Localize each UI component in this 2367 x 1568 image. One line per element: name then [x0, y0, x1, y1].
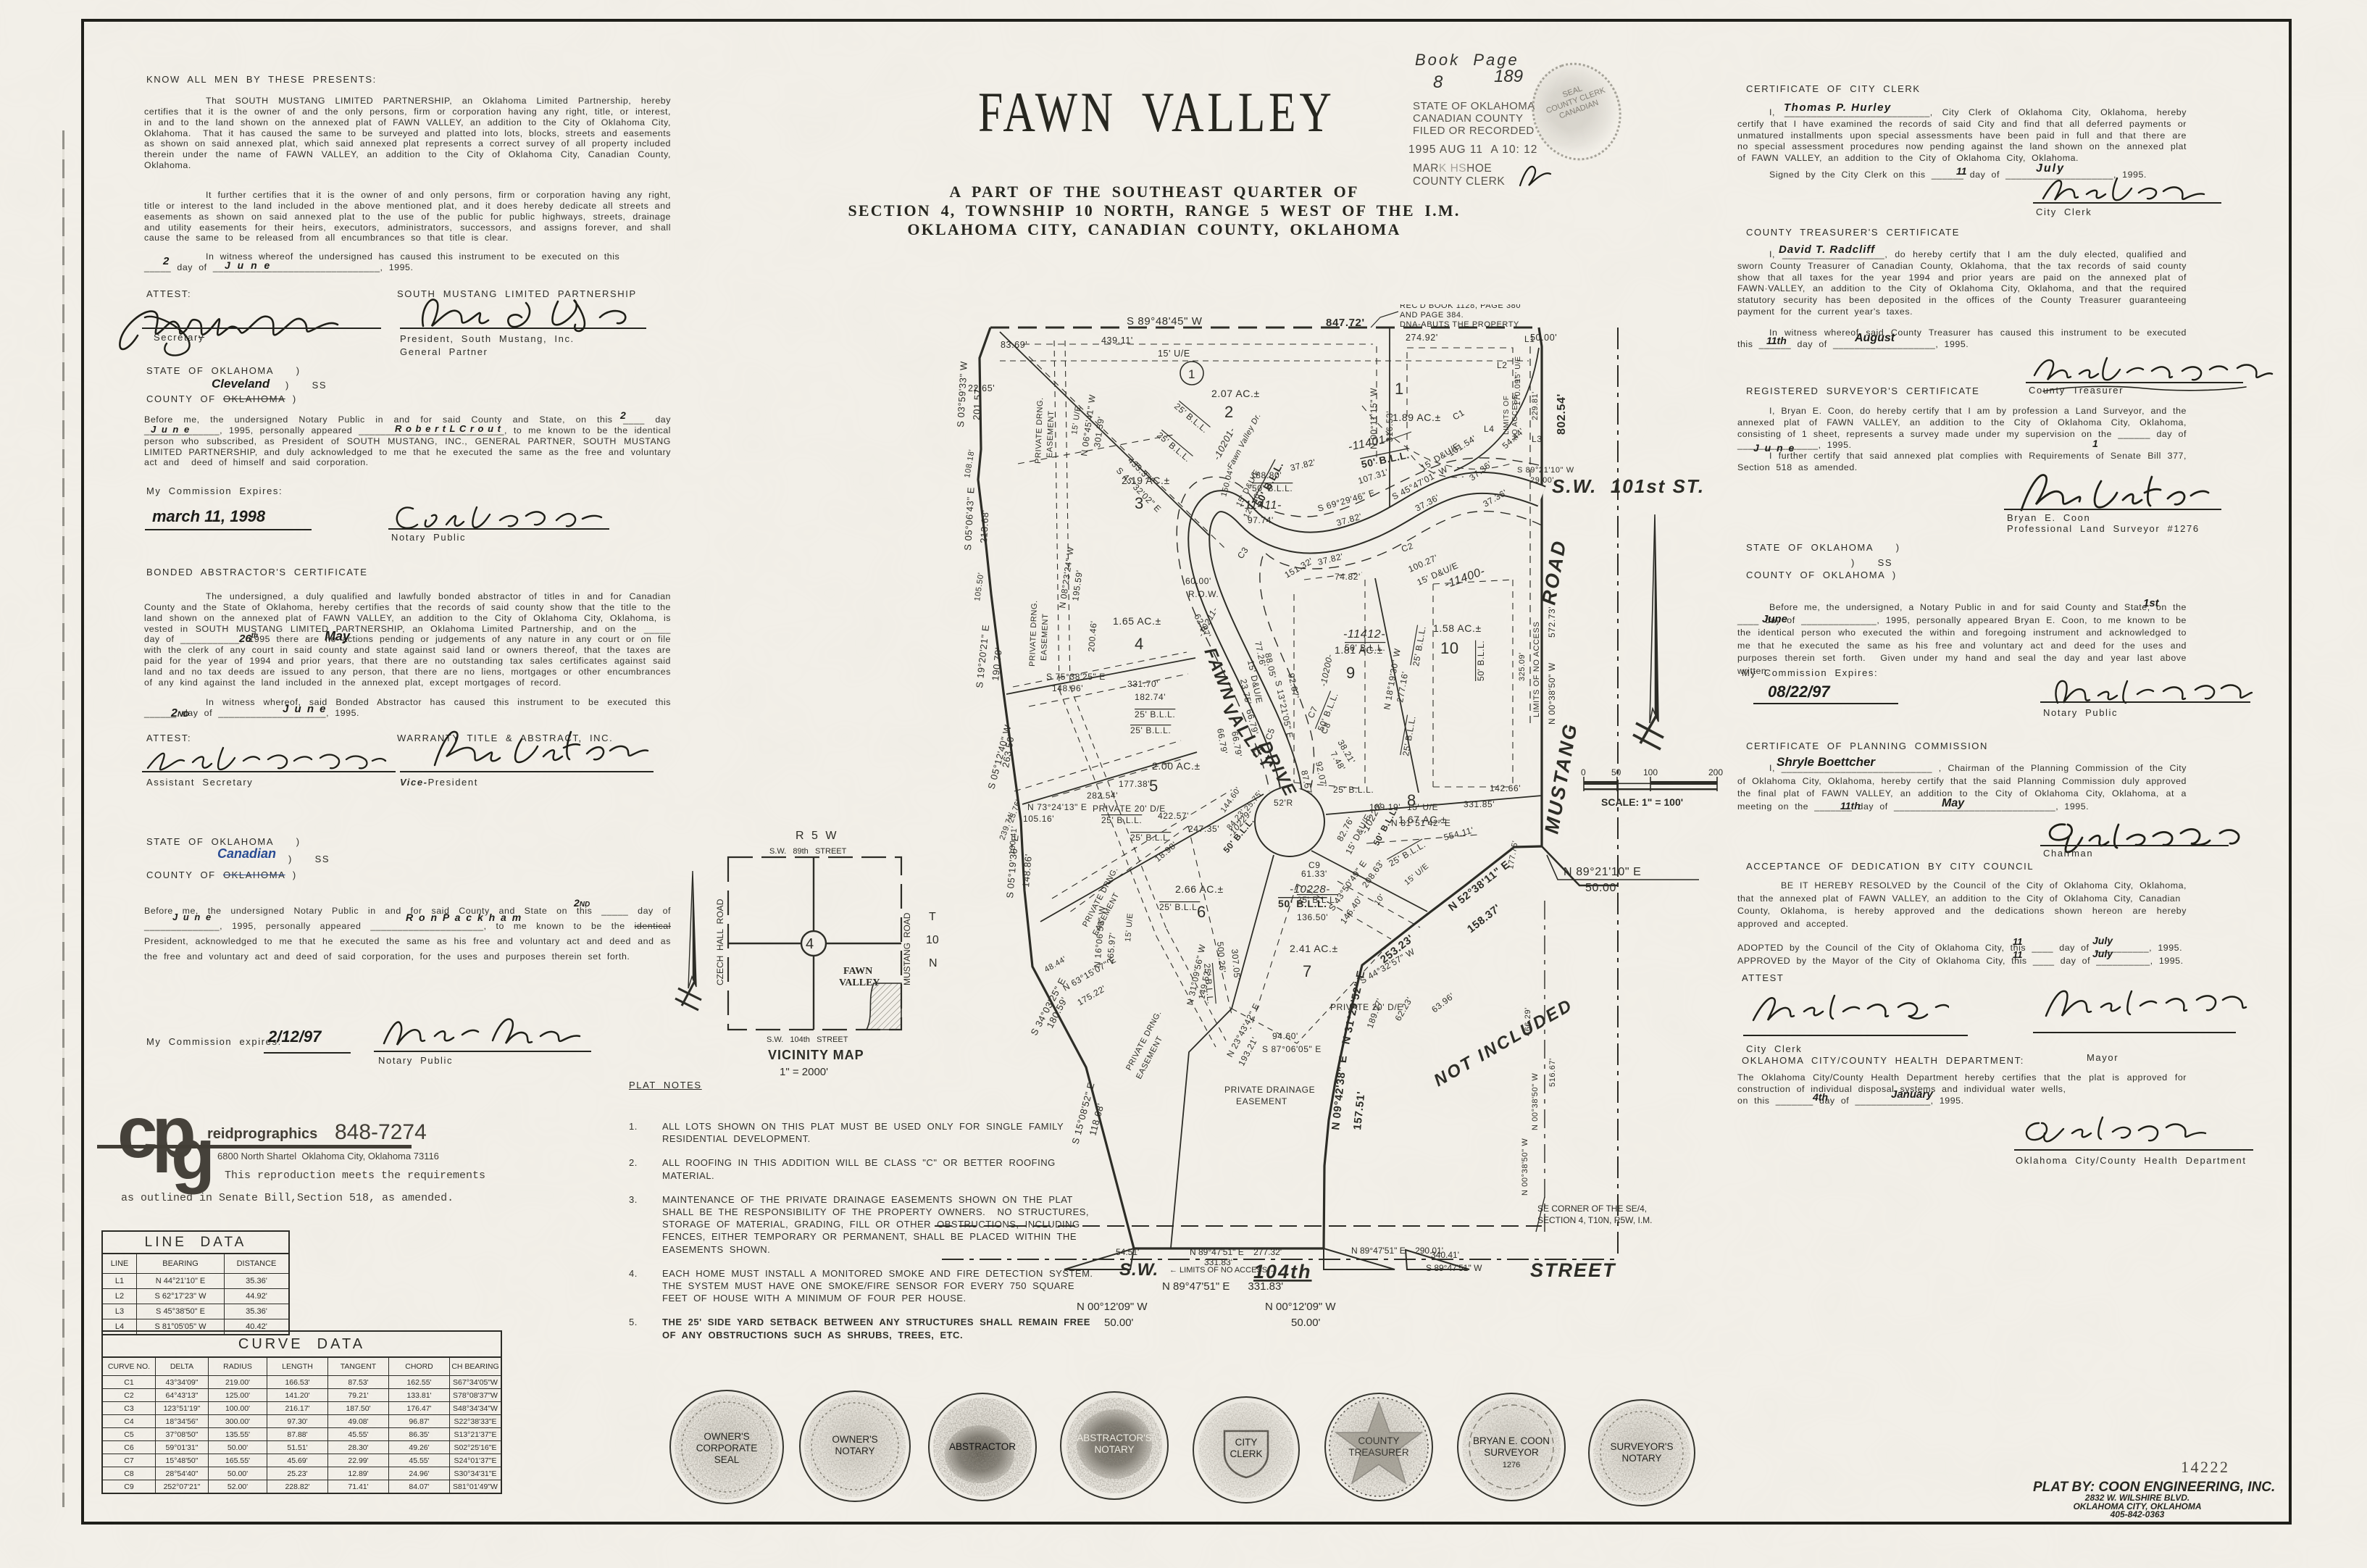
- svg-text:148.96': 148.96': [1052, 683, 1083, 693]
- svg-text:S 89°47'51" W: S 89°47'51" W: [1426, 1263, 1482, 1273]
- svg-text:R.O.W.: R.O.W.: [1188, 589, 1219, 599]
- svg-text:15' U/E: 15' U/E: [1407, 802, 1438, 812]
- svg-text:SEAL: SEAL: [714, 1454, 740, 1465]
- svg-text:7: 7: [1303, 962, 1312, 980]
- svg-text:60.00': 60.00': [1185, 576, 1211, 586]
- svg-text:15' U/E: 15' U/E: [1070, 405, 1082, 435]
- svg-text:SE CORNER OF THE SE/4,: SE CORNER OF THE SE/4,: [1537, 1204, 1647, 1214]
- svg-text:4: 4: [1135, 635, 1144, 653]
- svg-text:247.35': 247.35': [1188, 824, 1219, 834]
- svg-text:PRIVATE DRAINAGE: PRIVATE DRAINAGE: [1224, 1085, 1315, 1095]
- svg-text:229.81': 229.81': [1531, 391, 1540, 420]
- svg-text:S.W. 89th STREET: S.W. 89th STREET: [769, 847, 847, 856]
- svg-text:50.00': 50.00': [1104, 1317, 1134, 1329]
- svg-text:-11412-: -11412-: [1343, 628, 1385, 641]
- svg-text:15' U/E: 15' U/E: [1124, 912, 1135, 942]
- svg-text:18.98': 18.98': [1153, 839, 1180, 864]
- svg-text:C1: C1: [1451, 407, 1466, 422]
- svg-text:EASEMENT: EASEMENT: [1040, 613, 1050, 661]
- svg-text:50' B.L.L.: 50' B.L.L.: [1345, 643, 1385, 653]
- svg-text:52'R: 52'R: [1274, 798, 1293, 808]
- svg-text:S 69°29'46" E: S 69°29'46" E: [1316, 488, 1377, 514]
- svg-text:50' B.L.L.: 50' B.L.L.: [1278, 898, 1327, 909]
- svg-text:25' B.L.L.: 25' B.L.L.: [1130, 725, 1171, 735]
- svg-text:1276: 1276: [1503, 1461, 1520, 1469]
- svg-text:74.82': 74.82': [1335, 572, 1361, 582]
- svg-text:331.85': 331.85': [1464, 799, 1495, 809]
- svg-text:301.59': 301.59': [1092, 416, 1106, 449]
- svg-text:274.92': 274.92': [1406, 333, 1438, 343]
- svg-text:50: 50: [1611, 767, 1621, 777]
- svg-text:802.54': 802.54': [1556, 393, 1568, 435]
- svg-text:S 89°48'45" W: S 89°48'45" W: [1127, 315, 1203, 328]
- svg-text:N 00°11'15" W: N 00°11'15" W: [1369, 388, 1379, 449]
- svg-text:R 5 W: R 5 W: [796, 830, 838, 842]
- svg-text:1.89 AC.±: 1.89 AC.±: [1393, 412, 1441, 423]
- svg-text:100: 100: [1643, 767, 1658, 777]
- svg-text:10: 10: [926, 934, 939, 946]
- svg-text:N 00°38'50" W: N 00°38'50" W: [1531, 1073, 1540, 1130]
- svg-text:PRIVATE 20' D/E: PRIVATE 20' D/E: [1093, 804, 1166, 814]
- svg-text:50.00': 50.00': [1585, 882, 1619, 894]
- svg-text:10': 10': [1373, 893, 1387, 907]
- svg-text:CLERK: CLERK: [1230, 1448, 1262, 1459]
- svg-text:572.73': 572.73': [1547, 606, 1557, 638]
- svg-text:REC'D BOOK 1128, PAGE 380: REC'D BOOK 1128, PAGE 380: [1400, 304, 1521, 310]
- svg-text:S 87°06'05" E: S 87°06'05" E: [1262, 1044, 1322, 1054]
- svg-text:50' B.L.L.: 50' B.L.L.: [1476, 641, 1486, 681]
- svg-text:50.00': 50.00': [1291, 1317, 1321, 1329]
- svg-text:CZECH HALL ROAD: CZECH HALL ROAD: [715, 898, 725, 985]
- svg-text:DNA-ABUTS THE PROPERTY: DNA-ABUTS THE PROPERTY: [1400, 320, 1519, 329]
- svg-text:25' B.L.L.: 25' B.L.L.: [1101, 815, 1142, 825]
- svg-text:MUSTANG ROAD: MUSTANG ROAD: [902, 912, 912, 985]
- svg-text:92.07': 92.07': [1314, 761, 1329, 788]
- svg-text:1" = 2000': 1" = 2000': [780, 1066, 828, 1078]
- svg-text:SURVEYOR: SURVEYOR: [1484, 1447, 1539, 1458]
- svg-text:PRIVATE 20' D/E: PRIVATE 20' D/E: [1330, 1002, 1403, 1012]
- svg-text:FAWN: FAWN: [843, 966, 872, 977]
- svg-text:151.32': 151.32': [1283, 556, 1315, 580]
- svg-text:25' B.L.L.: 25' B.L.L.: [1400, 715, 1418, 757]
- svg-text:29.00': 29.00': [1530, 476, 1554, 485]
- svg-text:175.22': 175.22': [1076, 983, 1108, 1008]
- svg-text:BRYAN E. COON: BRYAN E. COON: [1473, 1435, 1550, 1446]
- svg-text:25' B.L.L.: 25' B.L.L.: [1333, 785, 1374, 795]
- svg-text:S 05°06'43" E: S 05°06'43" E: [962, 486, 977, 551]
- svg-text:94.60': 94.60': [1272, 1031, 1298, 1041]
- svg-text:37.82': 37.82': [1289, 457, 1316, 473]
- svg-text:L4: L4: [1484, 424, 1495, 434]
- svg-text:C7: C7: [1306, 704, 1320, 720]
- svg-text:EASEMENT: EASEMENT: [1045, 410, 1056, 458]
- svg-text:N 00°38'50" W: N 00°38'50" W: [1547, 662, 1557, 725]
- svg-text:NOTARY: NOTARY: [835, 1446, 874, 1456]
- svg-text:213.68': 213.68': [978, 509, 990, 543]
- svg-text:25' B.L.L.: 25' B.L.L.: [1172, 401, 1210, 435]
- svg-text:N 00°38'50" W: N 00°38'50" W: [1521, 1138, 1529, 1196]
- svg-text:← LIMITS OF NO ACCESS →: ← LIMITS OF NO ACCESS →: [1169, 1266, 1277, 1275]
- svg-text:VICINITY MAP: VICINITY MAP: [768, 1048, 864, 1062]
- svg-text:200.46': 200.46': [1086, 620, 1099, 652]
- svg-text:N 89°47'51" E 331.83': N 89°47'51" E 331.83': [1162, 1280, 1283, 1293]
- svg-text:182.74': 182.74': [1135, 692, 1166, 702]
- svg-text:LIMITS OF NO ACCESS: LIMITS OF NO ACCESS: [1532, 622, 1541, 717]
- svg-text:SECTION 4, T10N, R5W, I.M.: SECTION 4, T10N, R5W, I.M.: [1537, 1215, 1652, 1225]
- svg-text:AND PAGE 384.: AND PAGE 384.: [1400, 311, 1464, 320]
- svg-text:S 19°20'21" E: S 19°20'21" E: [974, 624, 991, 688]
- svg-text:N 89°47'51" E 277.32': N 89°47'51" E 277.32': [1190, 1247, 1282, 1257]
- svg-text:66.79': 66.79': [1215, 727, 1230, 755]
- svg-text:S.W. 104th STREET: S.W. 104th STREET: [767, 1035, 848, 1044]
- svg-text:N 52°38'11" E: N 52°38'11" E: [1446, 858, 1513, 914]
- svg-text:54.51': 54.51': [1116, 1247, 1139, 1257]
- svg-text:107.31': 107.31': [1357, 467, 1390, 486]
- svg-text:325.09': 325.09': [1518, 652, 1527, 681]
- svg-text:1.58 AC.±: 1.58 AC.±: [1433, 622, 1482, 634]
- svg-text:200: 200: [1708, 767, 1723, 777]
- svg-text:189.19': 189.19': [1369, 802, 1400, 812]
- svg-text:157.51': 157.51': [1351, 1090, 1368, 1130]
- svg-text:C3: C3: [1235, 545, 1251, 561]
- svg-text:201.57': 201.57': [971, 386, 983, 420]
- svg-text:L3: L3: [1532, 434, 1542, 444]
- svg-text:1: 1: [1188, 367, 1195, 381]
- svg-text:T: T: [929, 911, 936, 923]
- svg-text:5: 5: [1149, 777, 1159, 795]
- svg-text:L1: L1: [1524, 334, 1535, 344]
- svg-text:VALLEY: VALLEY: [839, 977, 880, 988]
- svg-text:N 73°24'13" E: N 73°24'13" E: [1027, 802, 1088, 812]
- svg-text:92.07': 92.07': [1286, 672, 1301, 700]
- svg-text:LIMITS OF: LIMITS OF: [1503, 396, 1511, 435]
- svg-text:439.11': 439.11': [1101, 335, 1133, 346]
- svg-text:N 89°21'10" E: N 89°21'10" E: [1564, 866, 1641, 878]
- svg-text:516.67': 516.67': [1548, 1058, 1557, 1087]
- svg-text:15' U/E: 15' U/E: [1514, 356, 1522, 383]
- svg-text:25' B.L.L.: 25' B.L.L.: [1411, 625, 1428, 667]
- svg-text:148.86': 148.86': [1020, 854, 1034, 888]
- svg-text:OWNER'S: OWNER'S: [832, 1434, 877, 1445]
- svg-text:2: 2: [1224, 403, 1234, 421]
- svg-text:C2: C2: [1400, 541, 1414, 554]
- svg-text:S 89°21'10" W: S 89°21'10" W: [1517, 466, 1574, 475]
- svg-text:331.70': 331.70': [1127, 679, 1159, 689]
- svg-text:PRIVATE DRNG.: PRIVATE DRNG.: [1028, 600, 1039, 667]
- svg-text:N 00°12'09" W: N 00°12'09" W: [1265, 1301, 1336, 1313]
- svg-text:S.W.: S.W.: [1119, 1260, 1159, 1280]
- svg-text:83.69': 83.69': [1001, 340, 1027, 350]
- svg-text:105.50': 105.50': [973, 572, 985, 601]
- svg-text:4: 4: [806, 936, 814, 952]
- svg-text:37.82': 37.82': [1316, 551, 1344, 567]
- svg-text:97.74': 97.74': [1248, 515, 1274, 525]
- svg-text:307.05': 307.05': [1230, 948, 1243, 980]
- svg-text:L2: L2: [1497, 360, 1508, 370]
- svg-text:-10228-: -10228-: [1290, 883, 1330, 896]
- svg-text:25' B.L.L.: 25' B.L.L.: [1130, 833, 1171, 843]
- svg-text:PRIVATE DRNG.: PRIVATE DRNG.: [1034, 397, 1045, 464]
- svg-text:N 81°51'42" E: N 81°51'42" E: [1391, 818, 1451, 828]
- svg-text:25' B.L.L.: 25' B.L.L.: [1135, 709, 1175, 720]
- svg-text:466.29': 466.29': [1524, 1007, 1532, 1036]
- svg-text:CORPORATE: CORPORATE: [696, 1443, 758, 1454]
- svg-text:N 00°12'09" W: N 00°12'09" W: [1077, 1301, 1148, 1313]
- svg-text:61.33': 61.33': [1301, 869, 1327, 879]
- svg-text:2.00 AC.±: 2.00 AC.±: [1152, 760, 1201, 772]
- svg-text:105.16': 105.16': [1023, 814, 1054, 824]
- svg-text:340.41': 340.41': [1431, 1250, 1459, 1260]
- svg-text:142.66': 142.66': [1490, 783, 1521, 793]
- svg-text:NOTARY: NOTARY: [1094, 1444, 1134, 1455]
- svg-text:48.44': 48.44': [1043, 955, 1069, 975]
- svg-text:25' B.L.L.: 25' B.L.L.: [1159, 902, 1200, 912]
- svg-text:108.18': 108.18': [963, 449, 977, 478]
- svg-text:9: 9: [1346, 664, 1356, 682]
- svg-text:63.96': 63.96': [1429, 991, 1456, 1014]
- svg-text:195.59': 195.59': [1070, 570, 1085, 602]
- svg-text:1.65 AC.±: 1.65 AC.±: [1113, 615, 1161, 627]
- svg-text:25' B.L.L.: 25' B.L.L.: [1155, 430, 1193, 464]
- svg-text:OWNER'S: OWNER'S: [704, 1431, 749, 1442]
- svg-text:N: N: [929, 957, 938, 969]
- svg-text:SCALE: 1" = 100': SCALE: 1" = 100': [1601, 796, 1683, 808]
- svg-text:S.W. 101st ST.: S.W. 101st ST.: [1552, 475, 1705, 497]
- svg-text:ABSTRACTOR: ABSTRACTOR: [949, 1441, 1016, 1452]
- svg-text:S 03°59'33" W: S 03°59'33" W: [955, 361, 969, 428]
- svg-text:10: 10: [1440, 639, 1459, 657]
- svg-text:MUSTANG: MUSTANG: [1540, 721, 1582, 835]
- svg-text:2.66 AC.±: 2.66 AC.±: [1175, 883, 1224, 895]
- svg-text:N 63°15'07" E: N 63°15'07" E: [1061, 954, 1118, 993]
- svg-text:15' U/E: 15' U/E: [1158, 349, 1190, 359]
- svg-text:EASEMENT: EASEMENT: [1236, 1096, 1287, 1106]
- svg-text:500.26': 500.26': [1215, 941, 1228, 973]
- svg-text:STREET: STREET: [1530, 1259, 1616, 1281]
- svg-text:NOTARY: NOTARY: [1621, 1453, 1661, 1464]
- svg-text:CITY: CITY: [1235, 1437, 1258, 1448]
- svg-text:15' U/E: 15' U/E: [1403, 862, 1430, 887]
- svg-text:847.72': 847.72': [1326, 317, 1365, 329]
- svg-text:1: 1: [1395, 380, 1404, 398]
- svg-text:177.38': 177.38': [1119, 779, 1150, 789]
- svg-text:158.37': 158.37': [1465, 902, 1503, 935]
- svg-text:0: 0: [1581, 767, 1586, 777]
- svg-text:S 75°38'25" E: S 75°38'25" E: [1046, 672, 1106, 682]
- svg-text:2.41 AC.±: 2.41 AC.±: [1290, 943, 1338, 954]
- svg-text:SURVEYOR'S: SURVEYOR'S: [1610, 1441, 1673, 1452]
- svg-text:2.07 AC.±: 2.07 AC.±: [1211, 388, 1260, 399]
- svg-text:-10200-: -10200-: [1318, 653, 1335, 687]
- svg-text:ABSTRACTOR'S: ABSTRACTOR'S: [1077, 1433, 1152, 1443]
- svg-text:316.53': 316.53': [1385, 411, 1395, 442]
- svg-text:N 89°47'51" E 290.01': N 89°47'51" E 290.01': [1351, 1246, 1443, 1256]
- svg-text:282.54': 282.54': [1087, 791, 1118, 801]
- svg-text:136.50': 136.50': [1297, 912, 1328, 922]
